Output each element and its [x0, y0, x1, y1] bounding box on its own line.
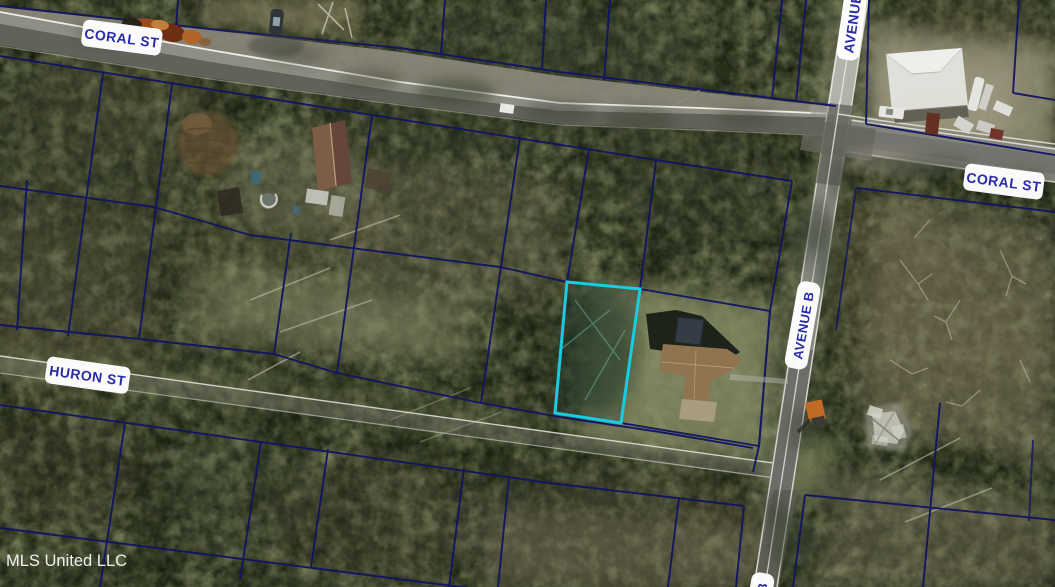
svg-text:MLS United LLC: MLS United LLC [6, 552, 127, 570]
